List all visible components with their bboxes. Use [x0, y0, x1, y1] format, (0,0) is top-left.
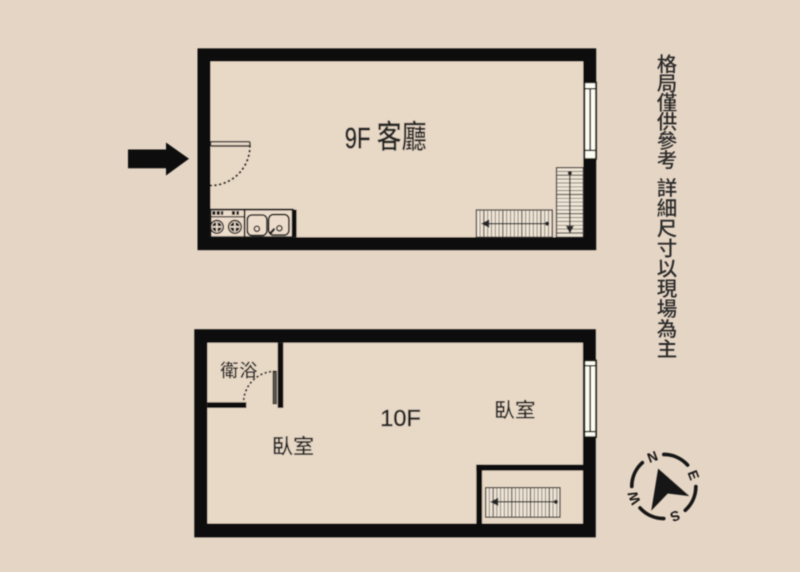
svg-text:9F: 9F: [345, 123, 371, 154]
svg-text:10F: 10F: [380, 405, 421, 431]
